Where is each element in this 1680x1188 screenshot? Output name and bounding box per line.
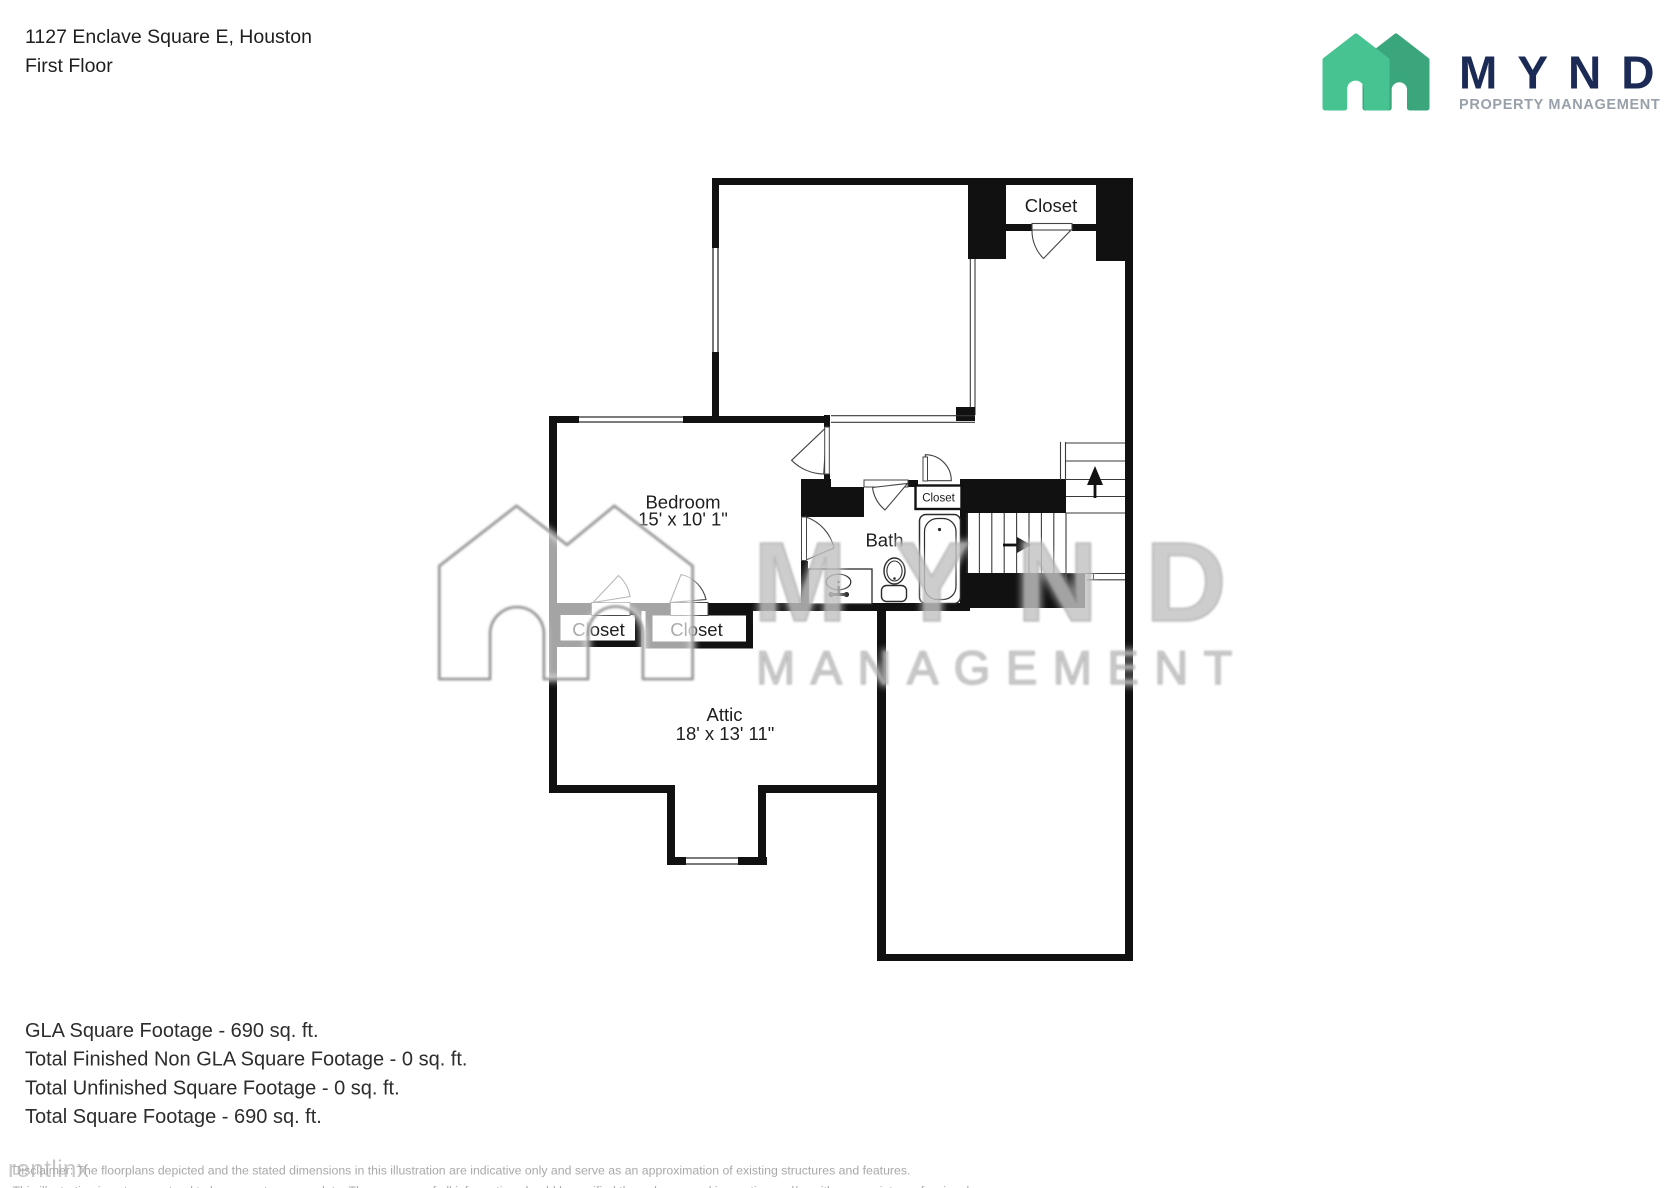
svg-text:First Floor: First Floor <box>25 55 113 77</box>
svg-text:Closet: Closet <box>922 493 955 505</box>
svg-text:Total Unfinished Square Footag: Total Unfinished Square Footage - 0 sq. … <box>25 1077 400 1099</box>
svg-text:This illustration is not guara: This illustration is not guaranteed to b… <box>13 1184 979 1188</box>
svg-text:Attic: Attic <box>707 704 743 725</box>
svg-text:Disclaimer: The floorplans dep: Disclaimer: The floorplans depicted and … <box>13 1164 911 1178</box>
svg-text:PROPERTY MANAGEMENT: PROPERTY MANAGEMENT <box>1459 97 1660 113</box>
svg-text:15' x 10' 1": 15' x 10' 1" <box>638 509 728 530</box>
svg-text:GLA Square Footage - 690 sq. f: GLA Square Footage - 690 sq. ft. <box>25 1020 319 1042</box>
svg-text:1127 Enclave Square E, Houston: 1127 Enclave Square E, Houston <box>25 26 312 48</box>
svg-text:MYND: MYND <box>753 519 1274 645</box>
svg-text:MYND: MYND <box>1459 47 1674 99</box>
svg-text:MANAGEMENT: MANAGEMENT <box>756 641 1248 694</box>
svg-text:Total Finished Non GLA Square: Total Finished Non GLA Square Footage - … <box>25 1049 467 1071</box>
svg-text:Total Square Footage - 690 sq.: Total Square Footage - 690 sq. ft. <box>25 1106 322 1128</box>
svg-text:Closet: Closet <box>1025 195 1077 216</box>
svg-text:18' x 13' 11": 18' x 13' 11" <box>676 723 775 744</box>
